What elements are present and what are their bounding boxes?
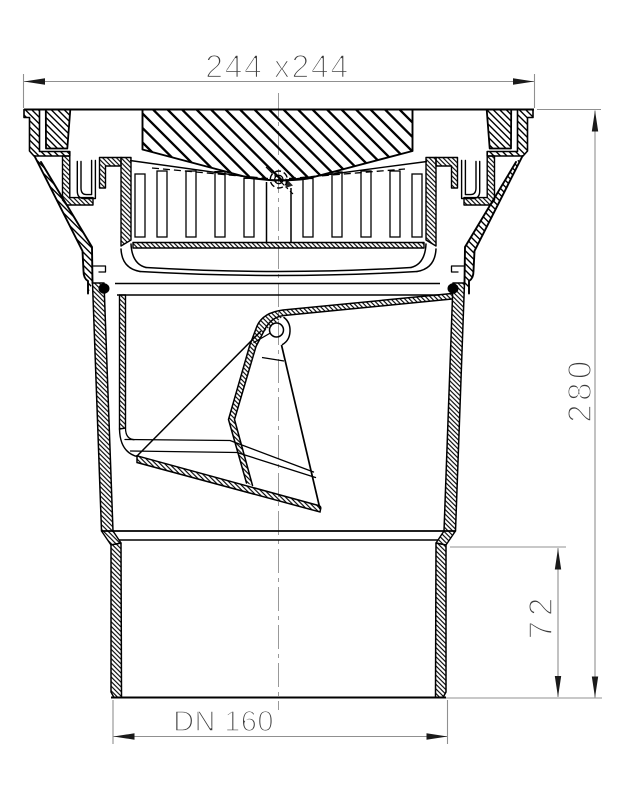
svg-text:280: 280 (561, 357, 598, 423)
svg-text:DN 160: DN 160 (173, 706, 274, 738)
svg-text:72: 72 (522, 593, 559, 640)
svg-text:244 x244: 244 x244 (205, 49, 349, 85)
